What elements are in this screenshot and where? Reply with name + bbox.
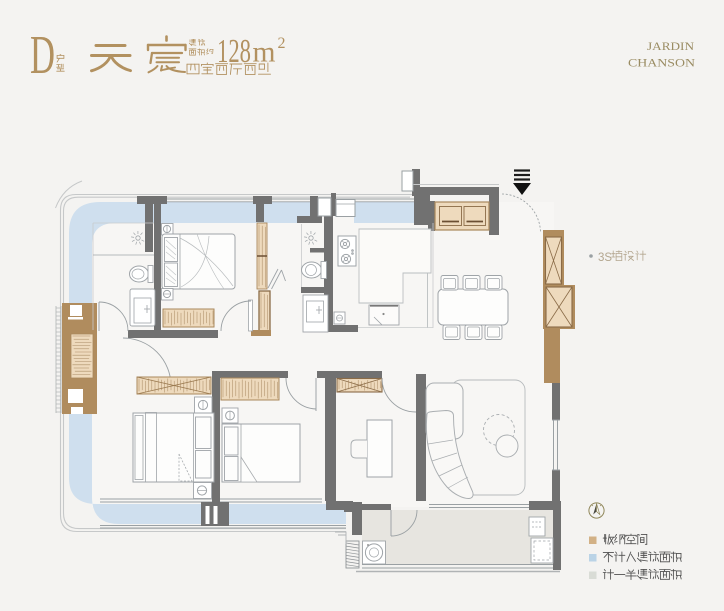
svg-text:3S: 3S (598, 252, 612, 264)
svg-text:2: 2 (278, 35, 286, 52)
svg-text:JARDIN: JARDIN (647, 39, 694, 53)
svg-text:D: D (30, 24, 55, 85)
svg-text:CHANSON: CHANSON (628, 56, 695, 70)
